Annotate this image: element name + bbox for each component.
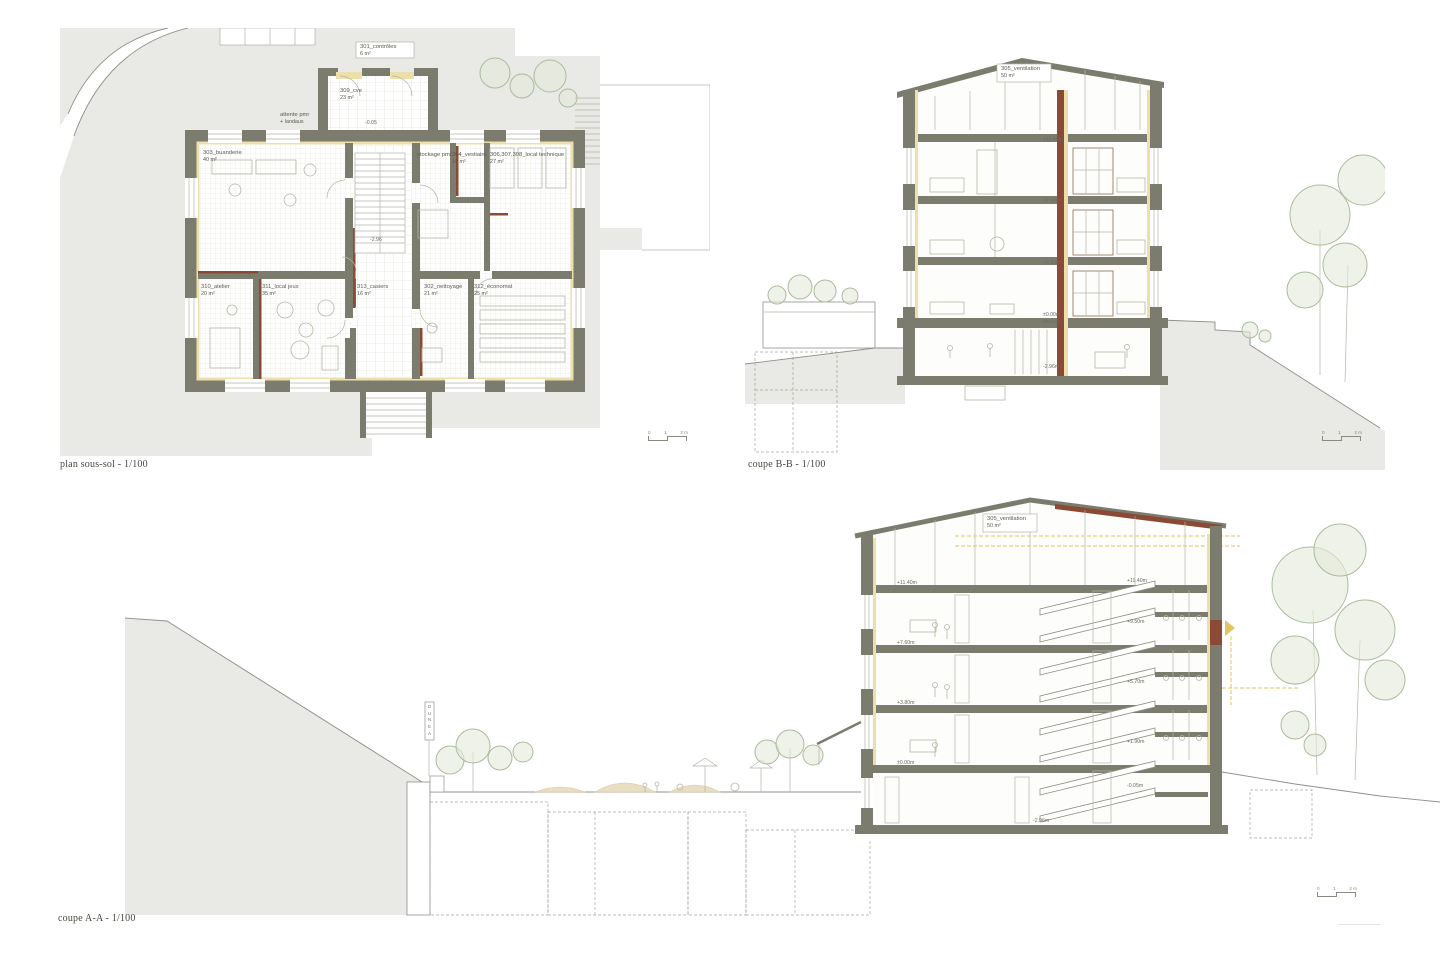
scale-bar-aa: 012 m	[1317, 886, 1357, 897]
scale-bar-plan: 012 m	[648, 430, 688, 441]
dunea-sign: D U N E A	[425, 704, 434, 737]
level-marker-aa-l3: ±0.00m	[897, 760, 914, 766]
aa-underground-rooms	[407, 782, 870, 915]
level-marker-bb-0: +11.40m	[1043, 137, 1063, 143]
room-label-stockage: stockage pmr	[417, 152, 452, 159]
level-marker-bb-1: +7.60m	[1043, 198, 1060, 204]
scale-bar-bb: 012 m	[1322, 430, 1362, 441]
caption-coupe-bb: coupe B-B - 1/100	[748, 459, 826, 470]
bb-trees-right	[1287, 155, 1385, 382]
level-marker-bb-altitude: 998.50m	[1043, 319, 1061, 324]
level-marker-bb-5: -2.96m	[1043, 364, 1059, 370]
room-label-casiers: 313_casiers16 m²	[357, 284, 388, 297]
plan-vestibule	[318, 68, 438, 130]
room-label-jeux: 311_local jeux35 m²	[262, 284, 299, 297]
level-marker-aa-r5: -2.96m	[1033, 818, 1049, 824]
level-marker-aa-l0: +11.40m	[897, 580, 917, 586]
caption-coupe-aa: coupe A-A - 1/100	[58, 913, 136, 924]
aa-building	[817, 500, 1300, 840]
attic-label-aa: 305_ventilation50 m²	[987, 516, 1026, 529]
room-label-vestiaire: 304_vestiaire10 m²	[452, 152, 486, 165]
plan-exit-stair	[360, 392, 432, 438]
bb-terrain-right	[1160, 320, 1385, 470]
bb-terrain-left	[745, 275, 905, 452]
room-label-technique: 306,307,308_local technique27 m²	[490, 152, 564, 165]
room-label-controles: 301_contrôles6 m²	[360, 44, 396, 57]
bb-building	[897, 58, 1168, 400]
level-marker-aa-r3: +1.90m	[1127, 739, 1144, 745]
level-marker-aa-l1: +7.60m	[897, 640, 914, 646]
aa-terrain-right	[1222, 772, 1440, 838]
drawing-plan-sous-sol: 301_contrôles6 m² 309_cve23 m² attente p…	[60, 28, 710, 468]
drawing-coupe-aa: 305_ventilation50 m² D U N E A +11.40m +…	[55, 490, 1440, 930]
level-marker-plan-hall: -2.96	[370, 237, 382, 243]
coupe-aa-graphic	[55, 490, 1440, 930]
level-marker-aa-r1: +9.50m	[1127, 619, 1144, 625]
level-marker-aa-r2: +5.70m	[1127, 679, 1144, 685]
level-marker-bb-3: ±0.00m	[1043, 312, 1060, 318]
architectural-sheet: 301_contrôles6 m² 309_cve23 m² attente p…	[0, 0, 1440, 960]
coupe-bb-graphic	[745, 30, 1385, 470]
plan-graphic	[60, 28, 710, 468]
aa-terrace	[425, 702, 870, 792]
attic-label-bb: 305_ventilation50 m²	[1001, 66, 1040, 79]
drawing-coupe-bb: 305_ventilation50 m² +11.40m +7.60m +3.8…	[745, 30, 1385, 470]
room-label-nettoyage: 302_nettoyage21 m²	[424, 284, 462, 297]
room-label-cve: 309_cve23 m²	[340, 88, 362, 101]
room-label-buanderie: 303_buanderie40 m²	[203, 150, 242, 163]
level-marker-plan-entry: -0.05	[365, 120, 377, 126]
footer-mark	[1338, 924, 1380, 925]
aa-hill-left	[125, 618, 430, 915]
room-label-attente: attente pmr+ landaus	[280, 112, 309, 125]
level-marker-bb-2: +3.80m	[1043, 260, 1060, 266]
room-label-economat: 312_économat25 m²	[474, 284, 512, 297]
room-label-atelier: 310_atelier20 m²	[201, 284, 230, 297]
aa-trees-right	[1271, 524, 1405, 780]
level-marker-aa-r4: -0.05m	[1127, 783, 1143, 789]
level-marker-aa-l2: +3.80m	[897, 700, 914, 706]
caption-plan: plan sous-sol - 1/100	[60, 459, 148, 470]
level-marker-aa-r0: +11.40m	[1127, 578, 1147, 584]
